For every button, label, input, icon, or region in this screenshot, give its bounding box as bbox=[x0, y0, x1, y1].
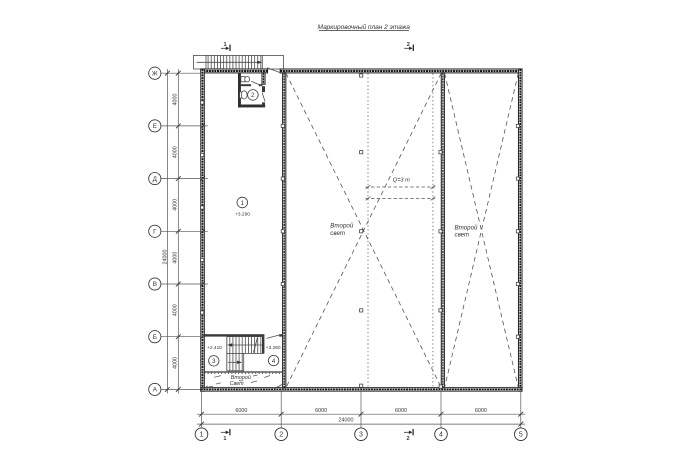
svg-text:Второй: Второй bbox=[231, 374, 251, 381]
svg-text:В: В bbox=[153, 281, 157, 288]
svg-text:24000: 24000 bbox=[339, 418, 354, 424]
svg-text:Г: Г bbox=[153, 229, 157, 236]
svg-text:6000: 6000 bbox=[235, 408, 247, 414]
svg-text:4000: 4000 bbox=[172, 304, 178, 316]
svg-text:4000: 4000 bbox=[172, 357, 178, 369]
svg-text:Б: Б bbox=[153, 334, 157, 341]
svg-text:4000: 4000 bbox=[172, 146, 178, 158]
svg-text:5: 5 bbox=[519, 432, 523, 439]
svg-text:+2.410: +2.410 bbox=[207, 345, 222, 351]
svg-text:Ж: Ж bbox=[152, 70, 158, 77]
svg-text:4000: 4000 bbox=[172, 94, 178, 106]
svg-text:Свет: Свет bbox=[230, 381, 245, 387]
svg-text:Второй: Второй bbox=[330, 223, 354, 230]
svg-text:3: 3 bbox=[359, 432, 363, 439]
svg-text:4000: 4000 bbox=[172, 199, 178, 211]
svg-text:Маркировочный план 2 этажа: Маркировочный план 2 этажа bbox=[318, 23, 411, 31]
svg-text:1: 1 bbox=[223, 42, 226, 48]
svg-text:2: 2 bbox=[251, 92, 255, 99]
svg-text:1: 1 bbox=[223, 436, 226, 442]
svg-text:6000: 6000 bbox=[475, 408, 487, 414]
svg-text:Д: Д bbox=[153, 176, 158, 183]
svg-text:+3.290: +3.290 bbox=[235, 211, 250, 217]
svg-text:4000: 4000 bbox=[172, 252, 178, 264]
svg-text:4: 4 bbox=[439, 432, 443, 439]
svg-text:Второй: Второй bbox=[455, 224, 479, 231]
svg-text:6000: 6000 bbox=[395, 408, 407, 414]
svg-text:Q=3 т: Q=3 т bbox=[393, 178, 410, 184]
svg-text:Е: Е bbox=[153, 123, 157, 130]
svg-text:2: 2 bbox=[279, 432, 283, 439]
svg-text:+3.250: +3.250 bbox=[266, 345, 281, 351]
svg-text:2: 2 bbox=[407, 42, 410, 48]
svg-text:1: 1 bbox=[241, 200, 245, 207]
svg-text:24000: 24000 bbox=[163, 250, 169, 265]
svg-text:свет: свет bbox=[455, 232, 470, 239]
svg-text:2: 2 bbox=[407, 436, 410, 442]
svg-text:свет: свет bbox=[330, 230, 345, 237]
svg-text:6000: 6000 bbox=[315, 408, 327, 414]
svg-text:1: 1 bbox=[200, 432, 204, 439]
